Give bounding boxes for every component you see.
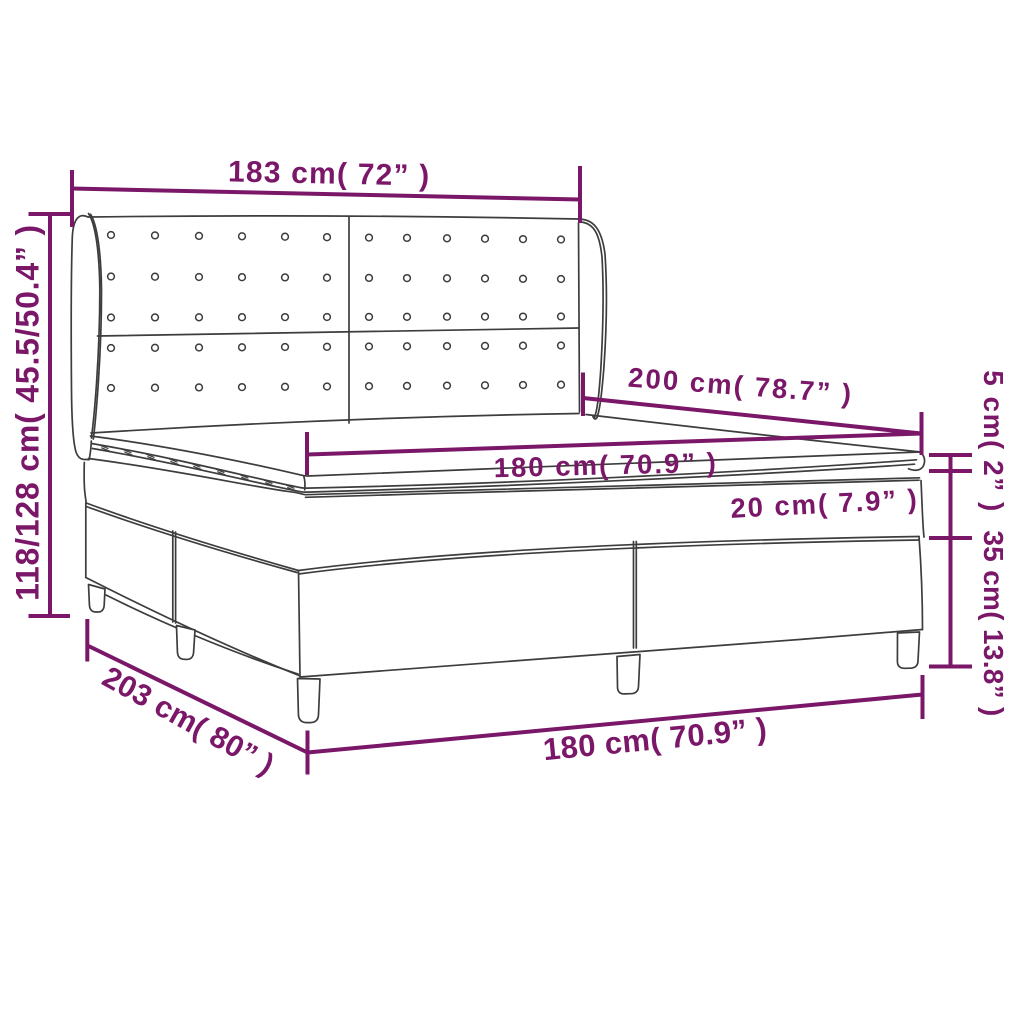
svg-text:183 cm( 72” ): 183 cm( 72” ) xyxy=(228,155,431,192)
svg-text:118/128 cm( 45.5/50.4” ): 118/128 cm( 45.5/50.4” ) xyxy=(10,224,46,601)
svg-text:35 cm( 13.8” ): 35 cm( 13.8” ) xyxy=(978,530,1009,716)
svg-text:180 cm( 70.9” ): 180 cm( 70.9” ) xyxy=(493,447,718,483)
svg-text:5 cm( 2” ): 5 cm( 2” ) xyxy=(978,370,1009,513)
